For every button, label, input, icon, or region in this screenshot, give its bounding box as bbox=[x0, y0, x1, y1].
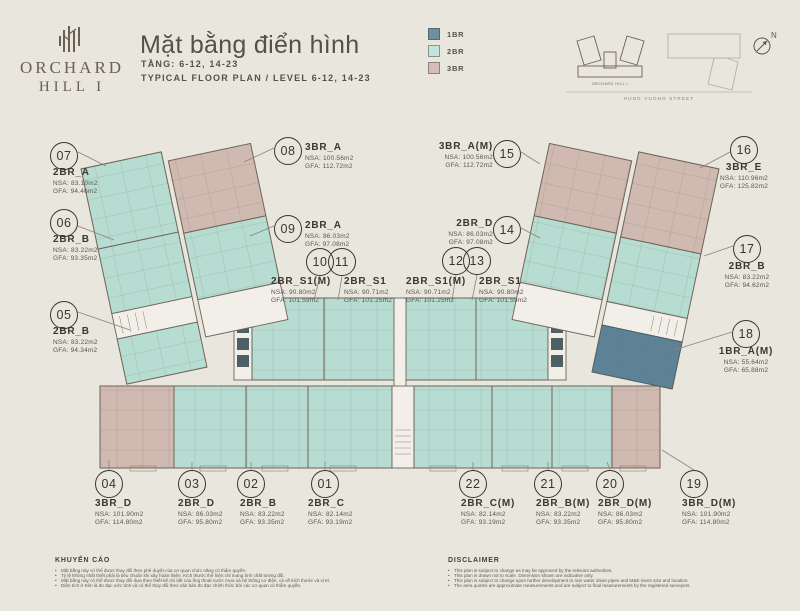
unit-22-callout-number: 22 bbox=[459, 470, 487, 498]
unit-17-callout-number: 17 bbox=[733, 235, 761, 263]
unit-15-info: 3BR_A(M)NSA: 100.56m2GFA: 112.72m2 bbox=[418, 141, 493, 170]
unit-type-label: 2BR_B bbox=[240, 498, 285, 509]
unit-gfa-value: GFA: 125.82m2 bbox=[704, 183, 784, 191]
unit-gfa-value: GFA: 94.34m2 bbox=[53, 347, 98, 355]
legend-label-3br: 3BR bbox=[447, 64, 464, 73]
unit-gfa-value: GFA: 114.80m2 bbox=[95, 519, 144, 527]
brand-logo: ORCHARD HILL I bbox=[16, 22, 128, 96]
unit-gfa-value: GFA: 101.59m2 bbox=[271, 297, 331, 305]
brand-name-line2: HILL I bbox=[16, 79, 128, 96]
unit-nsa-value: NSA: 101.90m2 bbox=[682, 511, 736, 519]
site-key-neighbour bbox=[668, 34, 740, 90]
legend-label-2br: 2BR bbox=[447, 47, 464, 56]
page-title: Mặt bằng điển hình bbox=[140, 31, 359, 60]
unit-14-callout-number: 14 bbox=[493, 216, 521, 244]
unit-13-callout-number: 13 bbox=[463, 247, 491, 275]
brand-name-line1: ORCHARD bbox=[16, 58, 128, 78]
unit-03-info: 2BR_DNSA: 86.03m2GFA: 95.80m2 bbox=[178, 498, 223, 527]
footer-en-bullet: The area quotes are approximate measurem… bbox=[448, 583, 778, 588]
site-key-building-label: ORCHARD HILL I bbox=[592, 82, 628, 86]
unit-16-info: 3BR_ENSA: 110.96m2GFA: 125.82m2 bbox=[704, 162, 784, 191]
unit-nsa-value: NSA: 90.71m2 bbox=[406, 289, 466, 297]
footer-en-heading: DISCLAIMER bbox=[448, 557, 778, 564]
unit-type-label: 2BR_S1 bbox=[479, 276, 527, 287]
unit-type-label: 3BR_A bbox=[305, 142, 354, 153]
unit-nsa-value: NSA: 83.22m2 bbox=[536, 511, 590, 519]
unit-19-callout-number: 19 bbox=[680, 470, 708, 498]
unit-type-label: 2BR_A bbox=[305, 220, 350, 231]
unit-gfa-value: GFA: 95.80m2 bbox=[178, 519, 223, 527]
unit-04-info: 3BR_DNSA: 101.90m2GFA: 114.80m2 bbox=[95, 498, 144, 527]
unit-nsa-value: NSA: 86.03m2 bbox=[420, 231, 493, 239]
compass-icon bbox=[754, 38, 770, 54]
unit-nsa-value: NSA: 100.56m2 bbox=[418, 154, 493, 162]
legend-swatch-2br bbox=[428, 45, 440, 57]
unit-gfa-value: GFA: 94.62m2 bbox=[707, 282, 787, 290]
unit-nsa-value: NSA: 90.71m2 bbox=[344, 289, 392, 297]
legend-label-1br: 1BR bbox=[447, 30, 464, 39]
unit-22-info: 2BR_C(M)NSA: 82.14m2GFA: 93.19m2 bbox=[461, 498, 515, 527]
floor-plan-page: ORCHARD HILL I HUNG VUONG STREET N ORCHA… bbox=[0, 0, 800, 611]
unit-08-info: 3BR_ANSA: 100.56m2GFA: 112.72m2 bbox=[305, 142, 354, 171]
unit-nsa-value: NSA: 90.80m2 bbox=[271, 289, 331, 297]
unit-gfa-value: GFA: 93.35m2 bbox=[53, 255, 98, 263]
unit-01-info: 2BR_CNSA: 82.14m2GFA: 93.19m2 bbox=[308, 498, 353, 527]
unit-nsa-value: NSA: 110.96m2 bbox=[704, 175, 784, 183]
unit-20-callout-number: 20 bbox=[596, 470, 624, 498]
unit-10-info: 2BR_S1(M)NSA: 90.80m2GFA: 101.59m2 bbox=[271, 276, 331, 305]
unit-gfa-value: GFA: 114.80m2 bbox=[682, 519, 736, 527]
unit-nsa-value: NSA: 86.03m2 bbox=[598, 511, 652, 519]
street-label: HUNG VUONG STREET bbox=[624, 96, 694, 101]
central-corridor bbox=[394, 298, 406, 390]
unit-12-info: 2BR_S1(M)NSA: 90.71m2GFA: 101.25m2 bbox=[406, 276, 466, 305]
unit-02-callout-number: 02 bbox=[237, 470, 265, 498]
unit-gfa-value: GFA: 95.80m2 bbox=[598, 519, 652, 527]
unit-18-callout-number: 18 bbox=[732, 320, 760, 348]
unit-05-info: 2BR_BNSA: 83.22m2GFA: 94.34m2 bbox=[53, 326, 98, 355]
unit-type-label: 1BR_A(M) bbox=[698, 346, 794, 357]
footer-en: DISCLAIMER This plan is subject to chang… bbox=[448, 557, 778, 588]
unit-gfa-value: GFA: 101.25m2 bbox=[406, 297, 466, 305]
unit-type-label: 2BR_B bbox=[53, 326, 98, 337]
footer-vi: KHUYẾN CÁO Mặt bằng này có thể được thay… bbox=[55, 557, 425, 588]
unit-type-label: 2BR_S1(M) bbox=[406, 276, 466, 287]
site-key-building bbox=[577, 36, 644, 77]
footer-vi-bullet: Diện tích ở trên là đo đạc ước tính và c… bbox=[55, 583, 425, 588]
legend-item-3br: 3BR bbox=[428, 62, 464, 74]
unit-14-info: 2BR_DNSA: 86.03m2GFA: 97.08m2 bbox=[420, 218, 493, 247]
unit-17-info: 2BR_BNSA: 83.22m2GFA: 94.62m2 bbox=[707, 261, 787, 290]
unit-18-info: 1BR_A(M)NSA: 55.64m2GFA: 65.88m2 bbox=[698, 346, 794, 375]
unit-13-info: 2BR_S1NSA: 90.80m2GFA: 101.59m2 bbox=[479, 276, 527, 305]
unit-nsa-value: NSA: 83.22m2 bbox=[53, 247, 98, 255]
unit-01-callout-number: 01 bbox=[311, 470, 339, 498]
unit-type-label: 2BR_C bbox=[308, 498, 353, 509]
unit-type-label: 3BR_A(M) bbox=[418, 141, 493, 152]
core-stairs bbox=[392, 386, 414, 468]
unit-21-info: 2BR_B(M)NSA: 83.22m2GFA: 93.35m2 bbox=[536, 498, 590, 527]
unit-type-legend: 1BR 2BR 3BR bbox=[428, 28, 464, 79]
unit-03-callout-number: 03 bbox=[178, 470, 206, 498]
unit-gfa-value: GFA: 93.19m2 bbox=[308, 519, 353, 527]
unit-gfa-value: GFA: 93.19m2 bbox=[461, 519, 515, 527]
unit-07-info: 2BR_ANSA: 83.10m2GFA: 94.46m2 bbox=[53, 167, 98, 196]
unit-nsa-value: NSA: 83.22m2 bbox=[707, 274, 787, 282]
compass-north-label: N bbox=[771, 31, 777, 40]
page-subtitle-en: TYPICAL FLOOR PLAN / LEVEL 6-12, 14-23 bbox=[141, 73, 371, 83]
unit-type-label: 2BR_C(M) bbox=[461, 498, 515, 509]
unit-02-info: 2BR_BNSA: 83.22m2GFA: 93.35m2 bbox=[240, 498, 285, 527]
unit-gfa-value: GFA: 101.25m2 bbox=[344, 297, 392, 305]
unit-15-callout-number: 15 bbox=[493, 140, 521, 168]
legend-swatch-3br bbox=[428, 62, 440, 74]
unit-type-label: 2BR_B bbox=[707, 261, 787, 272]
unit-gfa-value: GFA: 93.35m2 bbox=[240, 519, 285, 527]
unit-type-label: 2BR_D bbox=[178, 498, 223, 509]
unit-nsa-value: NSA: 101.90m2 bbox=[95, 511, 144, 519]
unit-08-callout-number: 08 bbox=[274, 137, 302, 165]
unit-nsa-value: NSA: 100.56m2 bbox=[305, 155, 354, 163]
unit-20-info: 2BR_D(M)NSA: 86.03m2GFA: 95.80m2 bbox=[598, 498, 652, 527]
unit-06-callout-number: 06 bbox=[50, 209, 78, 237]
unit-gfa-value: GFA: 112.72m2 bbox=[418, 162, 493, 170]
footer-vi-heading: KHUYẾN CÁO bbox=[55, 557, 425, 564]
unit-type-label: 2BR_D bbox=[420, 218, 493, 229]
unit-type-label: 2BR_B bbox=[53, 234, 98, 245]
unit-gfa-value: GFA: 94.46m2 bbox=[53, 188, 98, 196]
unit-nsa-value: NSA: 86.03m2 bbox=[178, 511, 223, 519]
legend-swatch-1br bbox=[428, 28, 440, 40]
unit-06-info: 2BR_BNSA: 83.22m2GFA: 93.35m2 bbox=[53, 234, 98, 263]
unit-type-label: 2BR_B(M) bbox=[536, 498, 590, 509]
unit-gfa-value: GFA: 97.08m2 bbox=[420, 239, 493, 247]
unit-nsa-value: NSA: 83.22m2 bbox=[240, 511, 285, 519]
unit-16-callout-number: 16 bbox=[730, 136, 758, 164]
unit-type-label: 2BR_S1 bbox=[344, 276, 392, 287]
unit-nsa-value: NSA: 83.10m2 bbox=[53, 180, 98, 188]
unit-07-callout-number: 07 bbox=[50, 142, 78, 170]
unit-09-callout-number: 09 bbox=[274, 215, 302, 243]
unit-nsa-value: NSA: 55.64m2 bbox=[698, 359, 794, 367]
unit-type-label: 2BR_D(M) bbox=[598, 498, 652, 509]
legend-item-1br: 1BR bbox=[428, 28, 464, 40]
unit-nsa-value: NSA: 82.14m2 bbox=[461, 511, 515, 519]
unit-type-label: 3BR_D(M) bbox=[682, 498, 736, 509]
unit-19-info: 3BR_D(M)NSA: 101.90m2GFA: 114.80m2 bbox=[682, 498, 736, 527]
unit-nsa-value: NSA: 83.22m2 bbox=[53, 339, 98, 347]
unit-05-callout-number: 05 bbox=[50, 301, 78, 329]
unit-21-callout-number: 21 bbox=[534, 470, 562, 498]
unit-nsa-value: NSA: 82.14m2 bbox=[308, 511, 353, 519]
unit-type-label: 3BR_D bbox=[95, 498, 144, 509]
unit-type-label: 3BR_E bbox=[704, 162, 784, 173]
unit-type-label: 2BR_S1(M) bbox=[271, 276, 331, 287]
unit-09-info: 2BR_ANSA: 86.03m2GFA: 97.08m2 bbox=[305, 220, 350, 249]
unit-gfa-value: GFA: 65.88m2 bbox=[698, 367, 794, 375]
unit-gfa-value: GFA: 112.72m2 bbox=[305, 163, 354, 171]
legend-item-2br: 2BR bbox=[428, 45, 464, 57]
unit-11-callout-number: 11 bbox=[328, 248, 356, 276]
unit-04-callout-number: 04 bbox=[95, 470, 123, 498]
unit-gfa-value: GFA: 93.35m2 bbox=[536, 519, 590, 527]
unit-type-label: 2BR_A bbox=[53, 167, 98, 178]
unit-nsa-value: NSA: 86.03m2 bbox=[305, 233, 350, 241]
unit-11-info: 2BR_S1NSA: 90.71m2GFA: 101.25m2 bbox=[344, 276, 392, 305]
unit-nsa-value: NSA: 90.80m2 bbox=[479, 289, 527, 297]
bottom-slab bbox=[100, 386, 660, 471]
page-subtitle-vi: TẦNG: 6-12, 14-23 bbox=[141, 59, 238, 69]
unit-gfa-value: GFA: 101.59m2 bbox=[479, 297, 527, 305]
